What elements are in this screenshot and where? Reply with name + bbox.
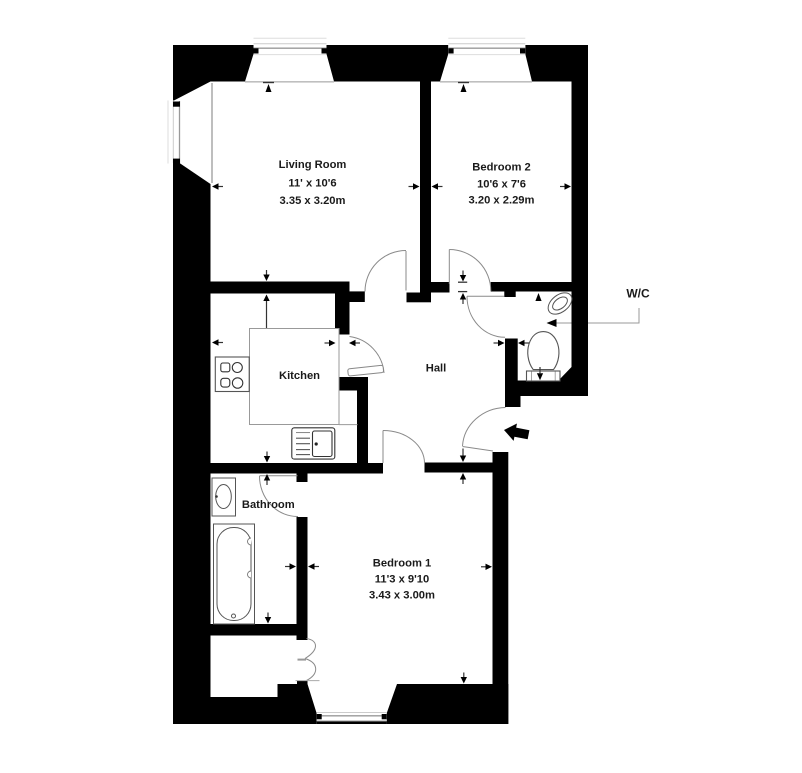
svg-text:Bedroom 2: Bedroom 2	[472, 162, 530, 174]
svg-text:Bedroom 1: Bedroom 1	[373, 558, 431, 570]
svg-text:3.35 x 3.20m: 3.35 x 3.20m	[280, 195, 346, 207]
svg-text:W/C: W/C	[626, 286, 650, 300]
svg-text:Bathroom: Bathroom	[242, 499, 295, 511]
svg-text:11'3 x 9'10: 11'3 x 9'10	[375, 574, 429, 586]
svg-text:Hall: Hall	[426, 363, 447, 375]
svg-text:11' x 10'6: 11' x 10'6	[288, 178, 336, 190]
svg-text:3.20 x 2.29m: 3.20 x 2.29m	[469, 194, 535, 206]
svg-text:10'6 x 7'6: 10'6 x 7'6	[477, 178, 526, 190]
svg-text:3.43 x 3.00m: 3.43 x 3.00m	[369, 589, 435, 601]
svg-text:Kitchen: Kitchen	[279, 370, 320, 382]
svg-text:Living Room: Living Room	[279, 159, 347, 171]
